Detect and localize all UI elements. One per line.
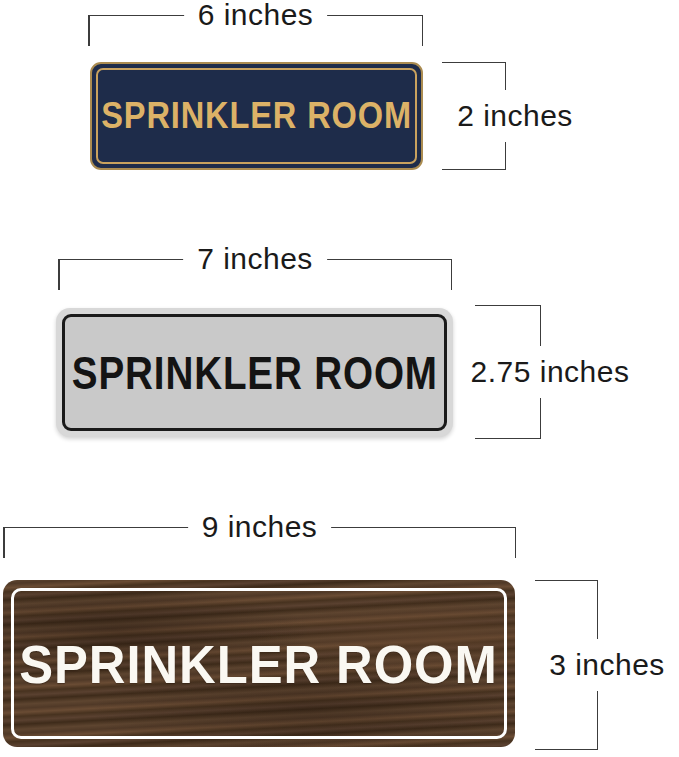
dimension-tick-right — [422, 15, 424, 46]
width-bracket-wood-sign: 9 inches — [3, 527, 516, 528]
black-line-border-panel: SPRINKLER ROOM — [62, 314, 447, 431]
height-bracket-navy-sign: 2 inches — [442, 62, 506, 170]
height-label-wood-sign: 3 inches — [543, 639, 671, 691]
dimension-tick-left — [3, 527, 5, 558]
height-bracket-wood-sign: 3 inches — [535, 580, 598, 750]
dimension-tick-right — [451, 259, 453, 290]
dimension-tick-left — [58, 259, 60, 290]
sprinkler-room-sign-silver: SPRINKLER ROOM — [56, 308, 453, 437]
sprinkler-room-sign-wood: SPRINKLER ROOM — [3, 580, 515, 747]
sprinkler-room-sign-navy: SPRINKLER ROOM — [90, 62, 423, 170]
width-bracket-navy-sign: 6 inches — [88, 15, 423, 16]
sign-text-wood: SPRINKLER ROOM — [20, 633, 498, 695]
dimension-tick-left — [88, 15, 90, 46]
width-label-wood-sign: 9 inches — [188, 510, 332, 544]
sign-size-comparison-diagram: 6 inches SPRINKLER ROOM 2 inches 7 inche… — [0, 0, 679, 757]
width-bracket-silver-sign: 7 inches — [58, 259, 452, 260]
dimension-tick-right — [515, 527, 517, 558]
sign-text-navy: SPRINKLER ROOM — [101, 95, 412, 137]
height-bracket-silver-sign: 2.75 inches — [475, 305, 541, 439]
sign-text-silver: SPRINKLER ROOM — [72, 346, 438, 400]
width-label-navy-sign: 6 inches — [184, 0, 328, 32]
height-label-silver-sign: 2.75 inches — [465, 346, 636, 398]
width-label-silver-sign: 7 inches — [183, 242, 327, 276]
height-label-navy-sign: 2 inches — [451, 90, 579, 142]
